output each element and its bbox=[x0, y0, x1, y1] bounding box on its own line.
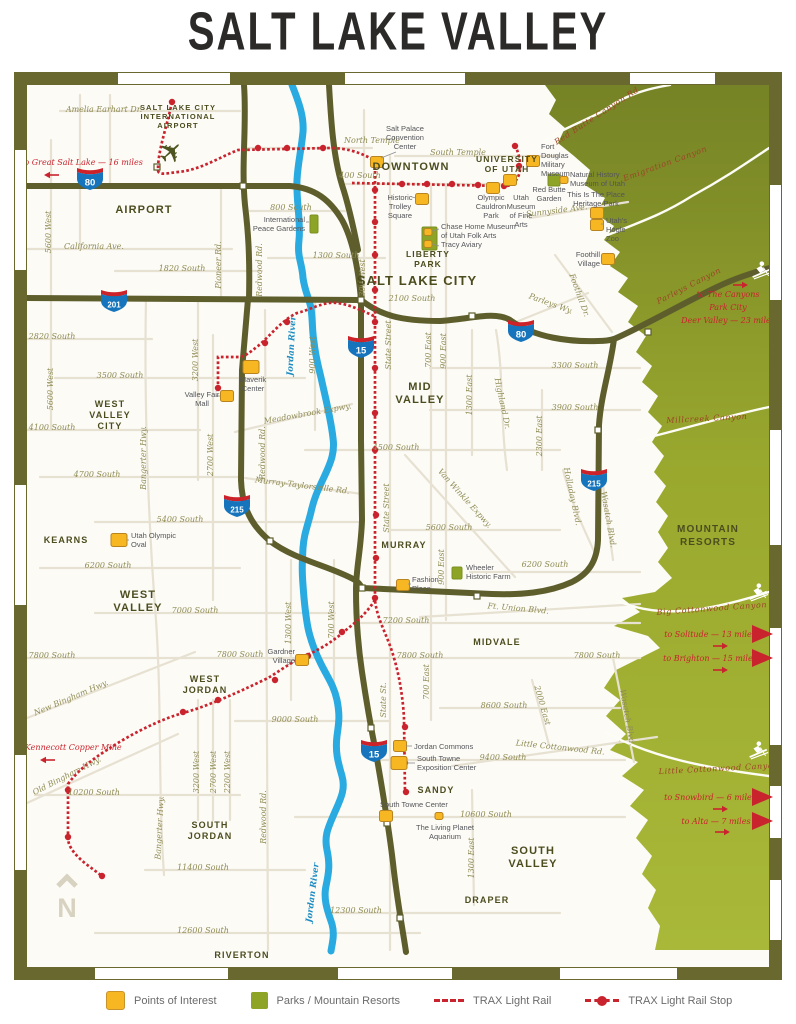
city-label-jordan: JORDAN bbox=[188, 831, 233, 841]
street-label-1300-south: 1300 South bbox=[313, 251, 360, 260]
city-label-mid: MID bbox=[408, 381, 431, 393]
street-label-11400-south: 11400 South bbox=[177, 863, 229, 872]
shield-number: 15 bbox=[369, 750, 380, 761]
street-label-3900-south: 3900 South bbox=[552, 403, 599, 412]
city-label-international: INTERNATIONAL bbox=[141, 112, 216, 121]
interchange-marker bbox=[474, 593, 480, 599]
street-label-california-ave: California Ave. bbox=[64, 242, 124, 251]
trax-stop-dot-icon bbox=[597, 996, 607, 1006]
destination-label-solitude: to Solitude — 13 miles bbox=[664, 630, 756, 639]
trax-stop bbox=[372, 595, 378, 601]
street-label-3300-south: 3300 South bbox=[552, 361, 599, 370]
poi-marker-chase-home-museum-of-utah-folk-arts bbox=[424, 229, 432, 236]
poi-label-historic-trolley-square: Trolley bbox=[389, 202, 411, 211]
poi-marker-jordan-commons bbox=[394, 741, 407, 752]
destination-label-snowbird: to Snowbird — 6 miles bbox=[664, 793, 756, 802]
poi-label-gardner-village: Gardner bbox=[267, 647, 295, 656]
city-label-draper: DRAPER bbox=[465, 895, 510, 905]
trax-stop-swatch bbox=[585, 999, 619, 1002]
poi-label-the-living-planet-aquarium: Aquarium bbox=[429, 832, 461, 841]
poi-marker-historic-trolley-square bbox=[416, 194, 429, 205]
city-label-west: WEST bbox=[120, 589, 156, 601]
trax-stop bbox=[372, 252, 378, 258]
trax-stop bbox=[262, 340, 268, 346]
poi-label-south-towne-exposition-center: Exposition Center bbox=[417, 763, 477, 772]
park-swatch bbox=[251, 992, 268, 1009]
poi-label-olympic-cauldron-park: Park bbox=[483, 211, 499, 220]
city-label-resorts: RESORTS bbox=[680, 537, 736, 548]
trax-line-swatch bbox=[434, 999, 464, 1002]
poi-label-utah-olympic-oval: Utah Olympic bbox=[131, 531, 176, 540]
poi-label-jordan-commons: Jordan Commons bbox=[414, 742, 473, 751]
trax-stop bbox=[372, 219, 378, 225]
poi-marker-the-living-planet-aquarium bbox=[435, 813, 443, 820]
street-label-4500-south: 4500 South bbox=[372, 443, 420, 452]
poi-marker-fashion-place bbox=[397, 580, 410, 591]
poi-marker-tracy-aviary bbox=[424, 241, 432, 248]
poi-marker-utah-museum-of-fine-arts bbox=[504, 175, 517, 186]
city-label-south: SOUTH bbox=[511, 845, 555, 857]
destination-label-park-city-deer-valley: Deer Valley — 23 miles bbox=[680, 316, 775, 325]
poi-label-valley-fair-mall: Mall bbox=[195, 399, 209, 408]
city-label-mountain: MOUNTAIN bbox=[677, 524, 739, 535]
poi-label-utahs-hogle-zoo: Zoo bbox=[606, 234, 619, 243]
street-label-redwood-rd: Redwood Rd. bbox=[255, 243, 264, 298]
street-label-9000-south: 9000 South bbox=[272, 715, 319, 724]
street-label-10600-south: 10600 South bbox=[460, 810, 512, 819]
street-label-bangerter-hwy: Bangerter Hwy. bbox=[139, 426, 148, 491]
poi-label-the-living-planet-aquarium: The Living Planet bbox=[416, 823, 475, 832]
interchange-marker bbox=[240, 183, 246, 189]
poi-label-utah-museum-of-fine-arts: Utah bbox=[513, 193, 529, 202]
interchange-marker bbox=[368, 725, 374, 731]
interchange-marker bbox=[645, 329, 651, 335]
trax-stop bbox=[272, 677, 278, 683]
street-label-12600-south: 12600 South bbox=[177, 926, 229, 935]
city-label-downtown: DOWNTOWN bbox=[372, 161, 449, 173]
city-label-liberty: LIBERTY bbox=[406, 249, 450, 259]
street-label-6200-south: 6200 South bbox=[85, 561, 132, 570]
poi-label-red-butte-garden: Garden bbox=[536, 194, 561, 203]
legend-label: TRAX Light Rail bbox=[473, 995, 551, 1007]
shield-number: 80 bbox=[85, 178, 96, 189]
poi-label-chase-home-museum-of-utah-folk-arts: Chase Home Museum bbox=[441, 222, 516, 231]
trax-stop bbox=[403, 789, 409, 795]
poi-label-this-is-the-place-heritage-park: Heritage Park bbox=[573, 199, 619, 208]
street-label-6200-south: 6200 South bbox=[522, 560, 569, 569]
city-label-airport: AIRPORT bbox=[115, 204, 172, 216]
poi-label-olympic-cauldron-park: Olympic bbox=[477, 193, 504, 202]
street-label-redwood-rd: Redwood Rd. bbox=[258, 426, 267, 481]
street-label-700-west: 700 West bbox=[327, 600, 336, 638]
poi-label-international-peace-gardens: Peace Gardens bbox=[253, 224, 305, 233]
legend-item-points-of-interest: Points of Interest bbox=[106, 991, 217, 1010]
trax-stop bbox=[372, 319, 378, 325]
city-label-airport: AIRPORT bbox=[157, 121, 198, 130]
poi-label-maverik-center: Maverik bbox=[240, 375, 267, 384]
shield-number: 201 bbox=[107, 301, 121, 310]
street-label-2100-south: 2100 South bbox=[388, 294, 436, 303]
street-label-3500-south: 3500 South bbox=[97, 371, 144, 380]
trax-stop bbox=[512, 143, 518, 149]
poi-label-utahs-hogle-zoo: Utah's bbox=[606, 216, 627, 225]
trax-stop bbox=[65, 834, 71, 840]
trax-stop bbox=[424, 181, 430, 187]
trax-stop bbox=[449, 181, 455, 187]
city-label-salt-lake-city: SALT LAKE CITY bbox=[140, 103, 216, 112]
city-label-valley: VALLEY bbox=[508, 858, 557, 870]
poi-label-fort-douglas-military-museum: Museum bbox=[541, 169, 570, 178]
poi-label-natural-history-museum-of-utah: Natural History bbox=[570, 170, 620, 179]
trax-stop bbox=[339, 629, 345, 635]
poi-label-salt-palace-convention-center: Convention bbox=[386, 133, 424, 142]
street-label-8600-south: 8600 South bbox=[481, 701, 528, 710]
street-label-2200-west: 2200 West bbox=[223, 750, 232, 794]
street-label-2820-south: 2820 South bbox=[28, 332, 76, 341]
city-label-midvale: MIDVALE bbox=[473, 637, 521, 647]
legend-item-trax-light-rail: TRAX Light Rail bbox=[434, 995, 551, 1007]
city-label-west: WEST bbox=[95, 399, 125, 409]
street-label-7800-south: 7800 South bbox=[397, 651, 444, 660]
map-inner: Amelia Earhart Dr.North TempleSouth Temp… bbox=[14, 85, 779, 967]
trax-stop bbox=[372, 365, 378, 371]
street-label-5600-west: 5600 West bbox=[44, 210, 53, 253]
shield-number: 80 bbox=[516, 330, 527, 341]
street-label-3200-west: 3200 West bbox=[192, 750, 201, 793]
street-label-1300-east: 1300 East bbox=[465, 374, 474, 416]
street-label-7800-south: 7800 South bbox=[217, 650, 264, 659]
poi-label-historic-trolley-square: Square bbox=[388, 211, 412, 220]
interchange-marker bbox=[359, 585, 365, 591]
interchange-marker bbox=[469, 313, 475, 319]
poi-label-utah-museum-of-fine-arts: Arts bbox=[514, 220, 528, 229]
park-marker-wheeler-historic-farm bbox=[452, 567, 462, 579]
street-label-1300-west: 1300 West bbox=[284, 601, 293, 644]
poi-marker-valley-fair-mall bbox=[221, 391, 234, 402]
interchange-marker bbox=[267, 538, 273, 544]
poi-label-chase-home-museum-of-utah-folk-arts: of Utah Folk Arts bbox=[441, 231, 497, 240]
street-label-5400-south: 5400 South bbox=[157, 515, 204, 524]
poi-label-south-towne-center: South Towne Center bbox=[380, 800, 448, 809]
trax-stop bbox=[255, 145, 261, 151]
poi-label-tracy-aviary: Tracy Aviary bbox=[441, 240, 482, 249]
trax-stop bbox=[99, 873, 105, 879]
city-label-riverton: RIVERTON bbox=[214, 950, 269, 960]
poi-label-this-is-the-place-heritage-park: This Is The Place bbox=[567, 190, 625, 199]
poi-label-natural-history-museum-of-utah: Museum of Utah bbox=[570, 179, 625, 188]
poi-label-utahs-hogle-zoo: Hogle bbox=[606, 225, 626, 234]
poi-label-fashion-place: Fashion bbox=[412, 575, 439, 584]
city-label-sandy: SANDY bbox=[417, 785, 454, 795]
poi-label-fort-douglas-military-museum: Fort bbox=[541, 142, 555, 151]
city-label-valley: VALLEY bbox=[113, 602, 162, 614]
city-label-valley: VALLEY bbox=[395, 394, 444, 406]
poi-label-red-butte-garden: Red Butte bbox=[532, 185, 565, 194]
street-label-7200-south: 7200 South bbox=[383, 616, 430, 625]
street-label-800-south: 800 South bbox=[270, 203, 312, 212]
north-letter: N bbox=[57, 893, 77, 923]
street-label-3200-west: 3200 West bbox=[191, 338, 200, 381]
street-label-700-east: 700 East bbox=[424, 331, 433, 368]
park-marker-international-peace-gardens bbox=[310, 215, 318, 233]
poi-marker-this-is-the-place-heritage-park bbox=[591, 208, 604, 219]
poi-label-utah-olympic-oval: Oval bbox=[131, 540, 147, 549]
poi-label-fort-douglas-military-museum: Military bbox=[541, 160, 565, 169]
legend-item-trax-light-rail-stop: TRAX Light Rail Stop bbox=[585, 995, 732, 1007]
poi-marker-south-towne-exposition-center bbox=[391, 757, 407, 770]
poi-label-wheeler-historic-farm: Historic Farm bbox=[466, 572, 511, 581]
street-label-2700-west: 2700 West bbox=[206, 433, 215, 477]
road-sr201 bbox=[27, 298, 361, 300]
destination-label-alta: to Alta — 7 miles bbox=[681, 817, 750, 826]
poi-label-maverik-center: Center bbox=[242, 384, 265, 393]
poi-marker-foothill-village bbox=[602, 254, 615, 265]
trax-stop bbox=[284, 145, 290, 151]
poi-marker-south-towne-center bbox=[380, 811, 393, 822]
street-label-5600-south: 5600 South bbox=[426, 523, 473, 532]
street-label-5600-west: 5600 West bbox=[46, 367, 55, 410]
destination-label-park-city-deer-valley: Park City bbox=[708, 303, 747, 312]
destination-label-kennecott-copper-mine: to Kennecott Copper Mine bbox=[14, 743, 122, 752]
trax-stop bbox=[373, 555, 379, 561]
legend-label: Parks / Mountain Resorts bbox=[277, 995, 401, 1007]
city-label-west: WEST bbox=[190, 674, 220, 684]
trax-stop bbox=[372, 410, 378, 416]
street-label-2700-west: 2700 West bbox=[209, 750, 218, 794]
poi-label-historic-trolley-square: Historic bbox=[387, 193, 412, 202]
trax-stop bbox=[402, 724, 408, 730]
street-label-amelia-earhart-dr: Amelia Earhart Dr. bbox=[65, 105, 142, 114]
street-label-7800-south: 7800 South bbox=[574, 651, 621, 660]
shield-number: 215 bbox=[587, 480, 601, 489]
street-label-900-west: 900 West bbox=[308, 335, 317, 373]
interchange-marker bbox=[595, 427, 601, 433]
city-label-murray: MURRAY bbox=[381, 540, 426, 550]
poi-marker-utahs-hogle-zoo bbox=[591, 220, 604, 231]
street-label-7800-south: 7800 South bbox=[29, 651, 76, 660]
city-label-of-utah: OF UTAH bbox=[485, 164, 530, 174]
street-label-state-street: State Street bbox=[382, 483, 391, 533]
street-label-900-east: 900 East bbox=[439, 332, 448, 369]
street-label-1300-east: 1300 East bbox=[467, 837, 476, 879]
poi-label-wheeler-historic-farm: Wheeler bbox=[466, 563, 494, 572]
legend: Points of Interest Parks / Mountain Reso… bbox=[106, 991, 732, 1010]
street-label-1820-south: 1820 South bbox=[159, 264, 206, 273]
street-label-pioneer-rd: Pioneer Rd. bbox=[214, 241, 223, 289]
street-label-700-east: 700 East bbox=[422, 663, 431, 700]
destination-label-brighton: to Brighton — 15 miles bbox=[663, 654, 757, 663]
street-label-9400-south: 9400 South bbox=[480, 753, 527, 762]
shield-number: 215 bbox=[230, 506, 244, 515]
poi-marker-utah-olympic-oval bbox=[111, 534, 127, 547]
trax-stop bbox=[399, 181, 405, 187]
poi-label-fashion-place: Place bbox=[412, 584, 431, 593]
poi-swatch bbox=[106, 991, 125, 1010]
poi-label-fort-douglas-military-museum: Douglas bbox=[541, 151, 569, 160]
street-label-7000-south: 7000 South bbox=[172, 606, 219, 615]
trax-stop bbox=[373, 512, 379, 518]
poi-label-international-peace-gardens: International bbox=[264, 215, 306, 224]
street-label-10200-south: 10200 South bbox=[68, 788, 120, 797]
city-label-valley: VALLEY bbox=[89, 410, 130, 420]
poi-marker-maverik-center bbox=[243, 361, 259, 374]
salt-lake-valley-map: Amelia Earhart Dr.North TempleSouth Temp… bbox=[0, 0, 796, 1024]
street-label-state-street: State Street bbox=[384, 320, 393, 370]
city-label-city: CITY bbox=[98, 421, 123, 431]
poi-label-south-towne-exposition-center: South Towne bbox=[417, 754, 460, 763]
poi-label-foothill-village: Foothill bbox=[576, 250, 601, 259]
destination-label-park-city-deer-valley: to The Canyons bbox=[697, 290, 760, 299]
city-label-south: SOUTH bbox=[192, 820, 229, 830]
poi-label-gardner-village: Village bbox=[273, 656, 295, 665]
legend-label: Points of Interest bbox=[134, 995, 217, 1007]
street-label-4100-south: 4100 South bbox=[28, 423, 76, 432]
poi-label-utah-museum-of-fine-arts: Museum bbox=[507, 202, 536, 211]
city-label-kearns: KEARNS bbox=[44, 535, 89, 545]
street-label-2300-east: 2300 East bbox=[535, 415, 544, 458]
city-label-jordan: JORDAN bbox=[183, 685, 228, 695]
street-label-state-st: State St. bbox=[379, 682, 388, 717]
city-label-park: PARK bbox=[414, 259, 442, 269]
destination-label-great-salt-lake: to Great Salt Lake — 16 miles bbox=[21, 158, 143, 167]
trax-stop bbox=[320, 145, 326, 151]
poi-label-salt-palace-convention-center: Center bbox=[394, 142, 417, 151]
legend-label: TRAX Light Rail Stop bbox=[628, 995, 732, 1007]
interchange-marker bbox=[358, 297, 364, 303]
shield-number: 15 bbox=[356, 346, 367, 357]
trax-stop bbox=[215, 697, 221, 703]
trax-stop bbox=[475, 182, 481, 188]
poi-label-olympic-cauldron-park: Cauldron bbox=[476, 202, 506, 211]
poi-label-foothill-village: Village bbox=[578, 259, 600, 268]
poi-label-utah-museum-of-fine-arts: of Fine bbox=[510, 211, 533, 220]
trax-stop bbox=[372, 187, 378, 193]
poi-marker-gardner-village bbox=[296, 655, 309, 666]
trax-stop bbox=[180, 709, 186, 715]
city-label-university: UNIVERSITY bbox=[476, 154, 538, 164]
salt-lake-valley-map-page: SALT LAKE VALLEY bbox=[0, 0, 796, 1024]
poi-marker-olympic-cauldron-park bbox=[487, 183, 500, 194]
interchange-marker bbox=[397, 915, 403, 921]
poi-label-salt-palace-convention-center: Salt Palace bbox=[386, 124, 424, 133]
street-label-12300-south: 12300 South bbox=[330, 906, 382, 915]
street-label-4700-south: 4700 South bbox=[73, 470, 121, 479]
poi-label-valley-fair-mall: Valley Fair bbox=[185, 390, 220, 399]
city-label-salt-lake-city: SALT LAKE CITY bbox=[357, 273, 478, 288]
street-label-redwood-rd: Redwood Rd. bbox=[259, 790, 268, 845]
legend-item-parks-mountain-resorts: Parks / Mountain Resorts bbox=[251, 992, 401, 1009]
